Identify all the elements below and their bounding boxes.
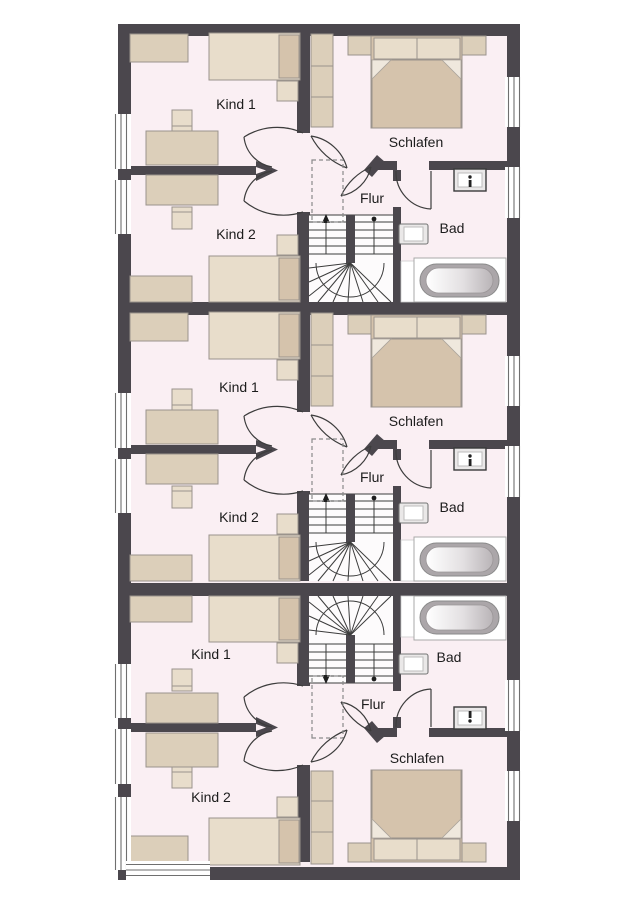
label-unit2-schlafen: Schlafen [389,413,443,429]
label-unit2-bad: Bad [440,499,465,515]
label-unit3-bad: Bad [437,649,462,665]
label-unit1-bad: Bad [440,220,465,236]
label-unit3-schlafen: Schlafen [390,750,444,766]
label-unit2-kind1: Kind 1 [219,379,259,395]
label-unit3-kind2: Kind 2 [191,789,231,805]
label-unit1-flur: Flur [360,190,384,206]
label-unit1-schlafen: Schlafen [389,134,443,150]
label-unit2-kind2: Kind 2 [219,509,259,525]
label-unit1-kind2: Kind 2 [216,226,256,242]
label-unit3-flur: Flur [361,696,385,712]
label-unit1-kind1: Kind 1 [216,96,256,112]
floor-plan-page: Kind 1 Kind 2 Schlafen Flur Bad Kind 1 K… [0,0,636,900]
label-unit3-kind1: Kind 1 [191,646,231,662]
floor-plan-drawing: Kind 1 Kind 2 Schlafen Flur Bad Kind 1 K… [0,0,636,900]
party-wall-2 [118,583,520,596]
label-unit2-flur: Flur [360,469,384,485]
